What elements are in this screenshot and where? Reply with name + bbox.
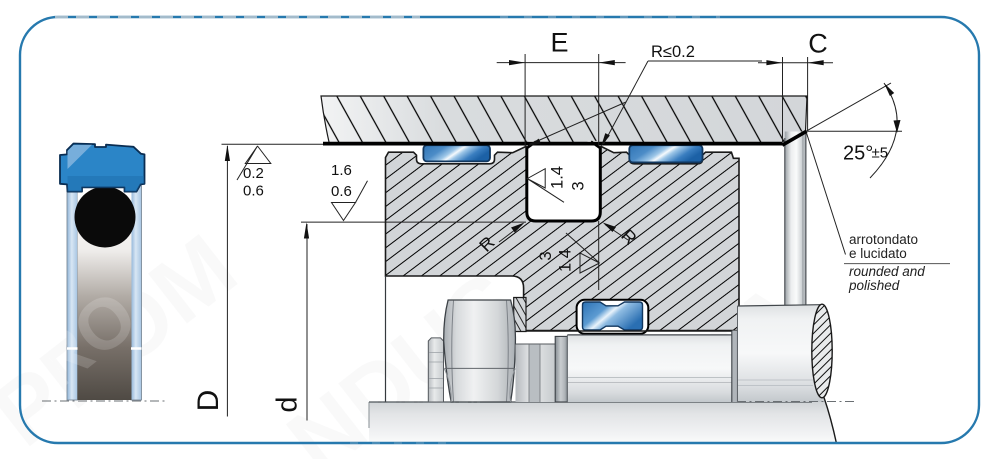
svg-text:1.4: 1.4: [549, 166, 567, 189]
svg-text:R≤0.2: R≤0.2: [651, 43, 695, 61]
svg-text:e lucidato: e lucidato: [849, 246, 907, 261]
svg-text:rounded and: rounded and: [849, 264, 925, 279]
svg-text:25°: 25°: [843, 143, 873, 165]
svg-text:C: C: [808, 29, 828, 59]
svg-text:polished: polished: [848, 278, 900, 293]
svg-text:0.2: 0.2: [243, 165, 264, 182]
svg-text:3: 3: [537, 251, 555, 260]
svg-text:arrotondato: arrotondato: [849, 232, 918, 247]
svg-text:0.6: 0.6: [243, 183, 264, 200]
svg-text:1.6: 1.6: [331, 162, 352, 179]
svg-text:d: d: [272, 396, 304, 412]
svg-text:±5: ±5: [872, 145, 889, 162]
svg-text:1.4: 1.4: [557, 249, 575, 272]
svg-text:D: D: [192, 390, 225, 412]
svg-text:3: 3: [570, 181, 588, 190]
svg-text:E: E: [550, 28, 568, 58]
svg-text:0.6: 0.6: [331, 183, 352, 200]
